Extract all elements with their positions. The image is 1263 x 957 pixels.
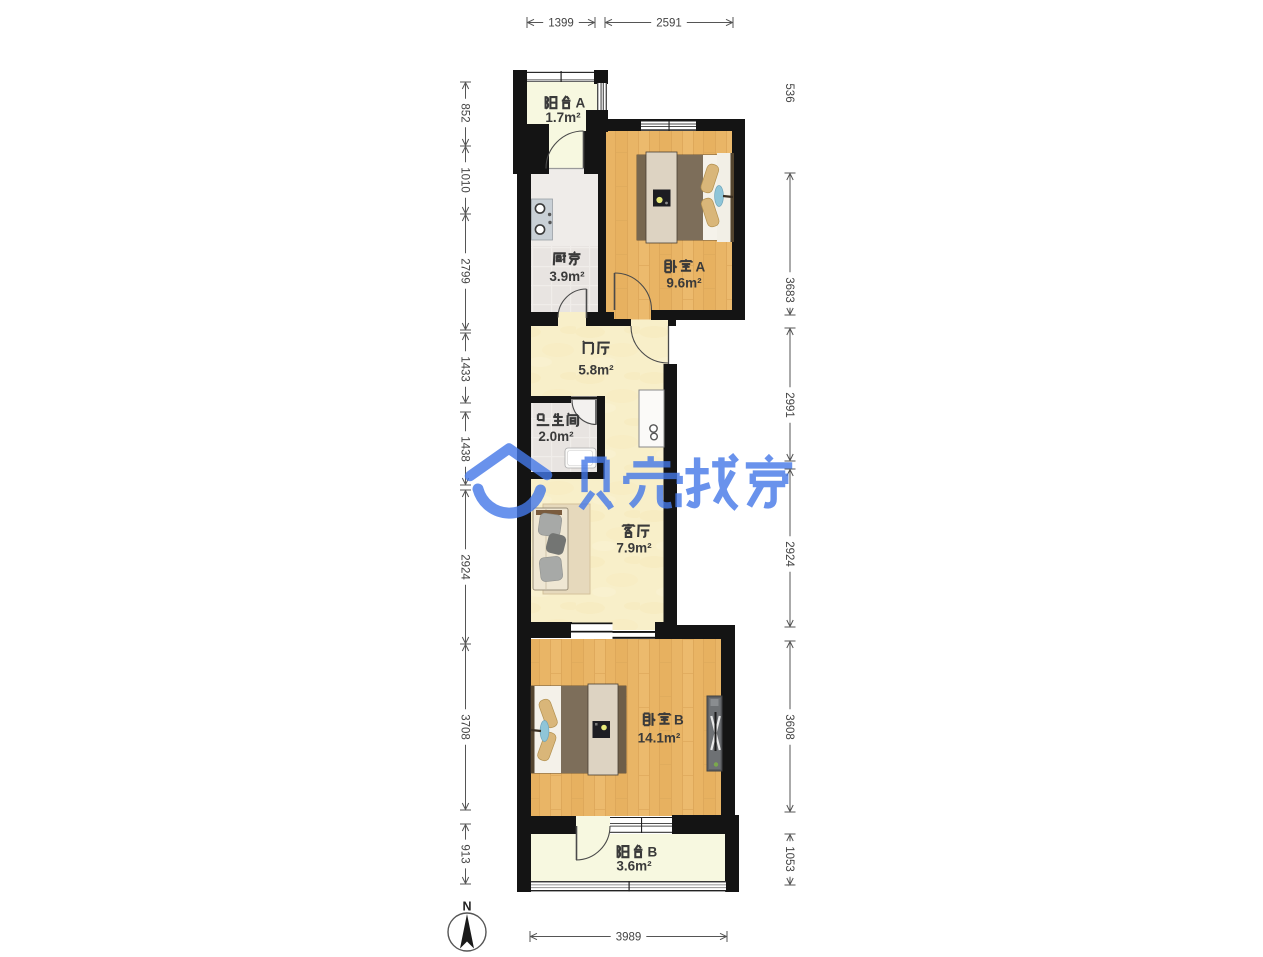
svg-text:3.6m²: 3.6m² [616,859,652,874]
svg-text:14.1m²: 14.1m² [638,731,681,746]
svg-text:2799: 2799 [459,258,471,284]
svg-text:1399: 1399 [548,18,574,30]
svg-text:3683: 3683 [783,277,795,303]
svg-text:7.9m²: 7.9m² [616,541,652,556]
svg-text:1010: 1010 [459,167,471,193]
svg-text:536: 536 [783,83,795,102]
svg-text:A: A [576,96,586,111]
svg-text:1.7m²: 1.7m² [545,110,581,125]
svg-text:913: 913 [459,844,471,863]
svg-text:3608: 3608 [783,714,795,740]
svg-text:B: B [648,845,658,860]
svg-text:2591: 2591 [656,18,682,30]
svg-text:2.0m²: 2.0m² [538,429,574,444]
svg-text:3708: 3708 [459,714,471,740]
svg-text:2991: 2991 [783,392,795,418]
svg-text:N: N [462,900,471,914]
svg-text:852: 852 [459,103,471,122]
svg-text:3.9m²: 3.9m² [549,269,585,284]
svg-text:1053: 1053 [783,846,795,872]
svg-text:3989: 3989 [616,932,642,944]
svg-text:1438: 1438 [459,436,471,462]
svg-text:B: B [674,713,684,728]
svg-text:9.6m²: 9.6m² [666,276,702,291]
svg-text:1433: 1433 [459,356,471,382]
svg-text:A: A [696,260,706,275]
svg-text:2924: 2924 [783,541,795,567]
svg-text:2924: 2924 [459,554,471,580]
svg-text:5.8m²: 5.8m² [578,363,614,378]
